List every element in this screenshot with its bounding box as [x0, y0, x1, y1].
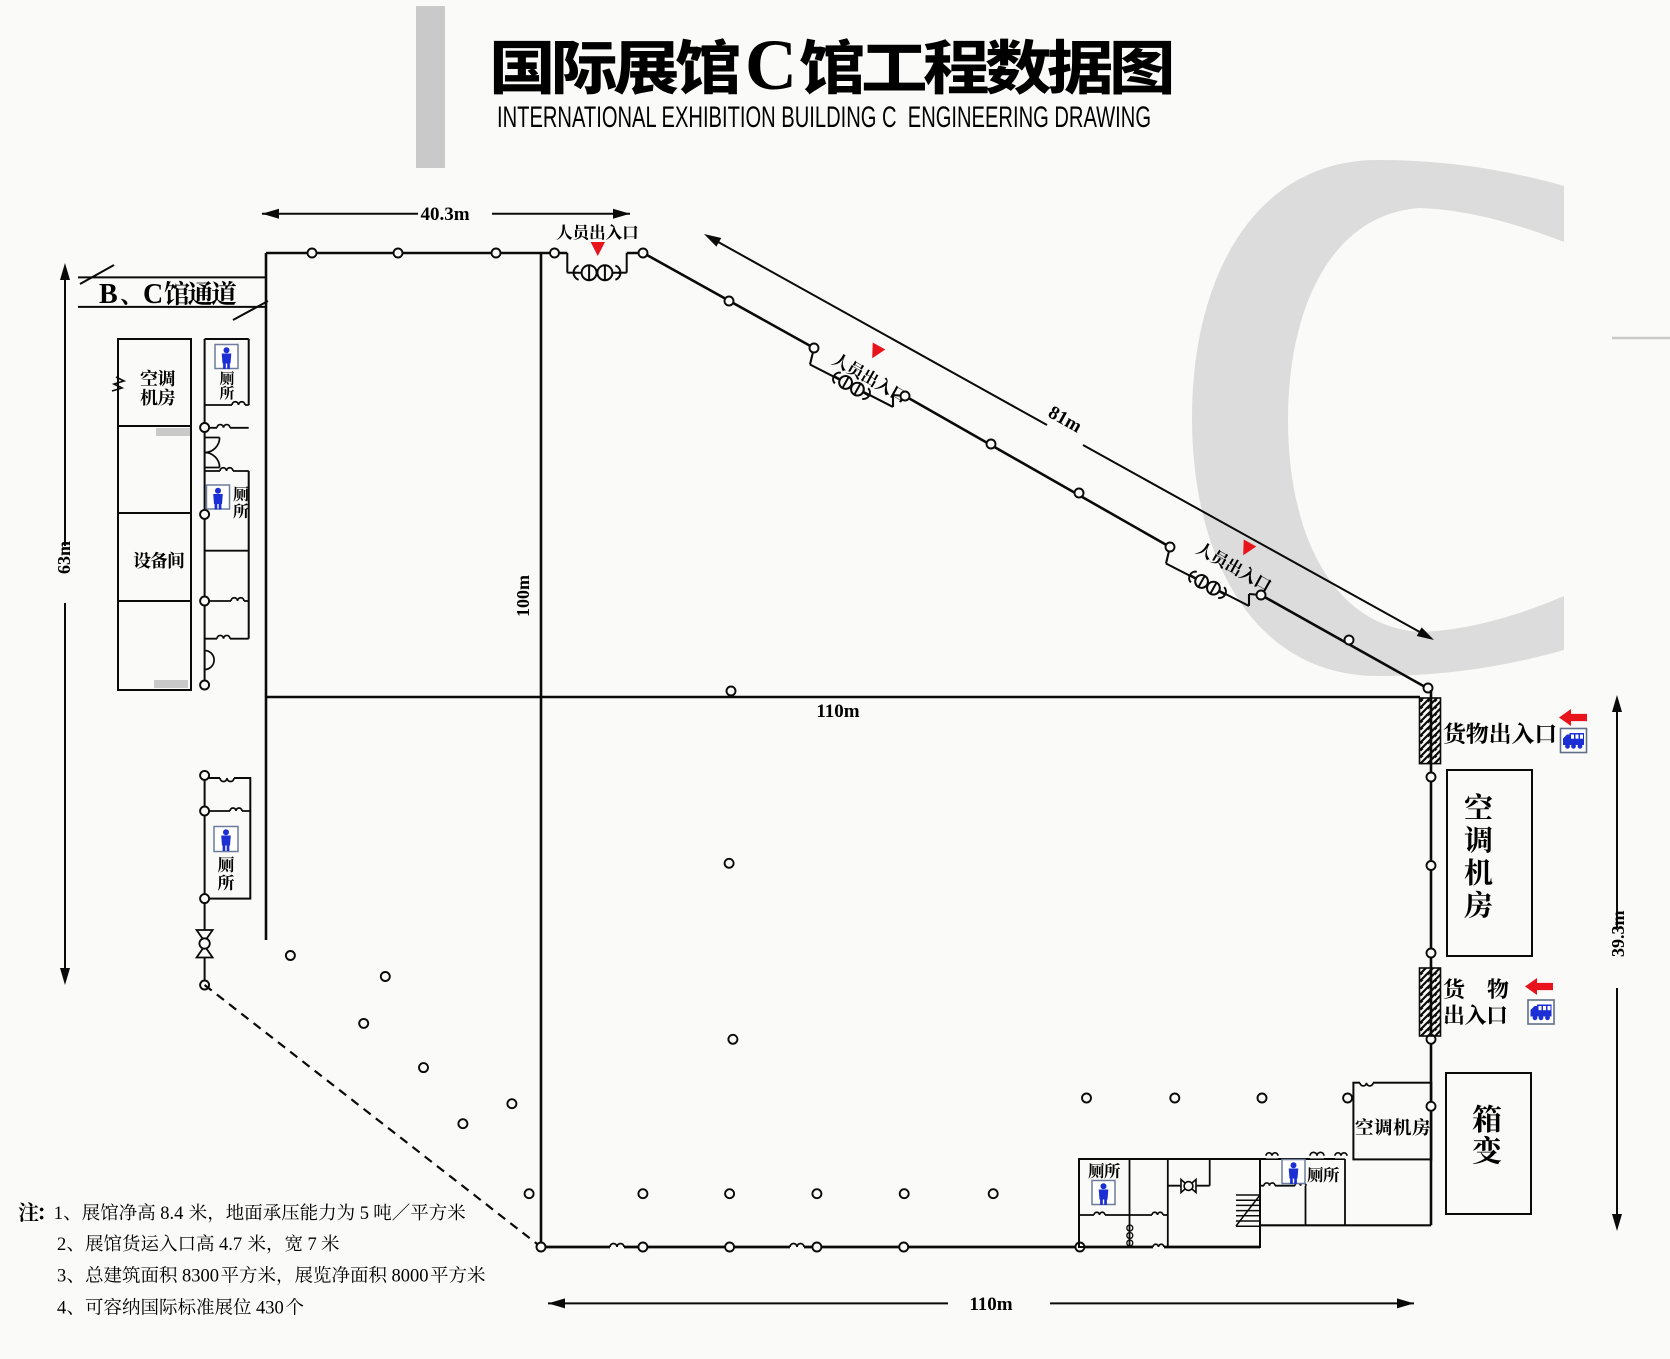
svg-text:C: C: [143, 279, 163, 310]
svg-text:8.4: 8.4: [160, 1204, 183, 1224]
svg-text:63m: 63m: [54, 541, 74, 574]
svg-text:4.7: 4.7: [219, 1235, 242, 1255]
svg-text:430: 430: [256, 1299, 284, 1319]
svg-text:4: 4: [57, 1299, 66, 1319]
svg-text:8300: 8300: [182, 1267, 219, 1287]
svg-text:40.3m: 40.3m: [420, 204, 469, 225]
svg-text:3: 3: [57, 1267, 66, 1287]
svg-text:INTERNATIONAL EXHIBITION BUILD: INTERNATIONAL EXHIBITION BUILDING C ENGI…: [497, 101, 1151, 134]
svg-text:1: 1: [54, 1204, 63, 1224]
svg-text:8000: 8000: [392, 1267, 429, 1287]
svg-text:39.3m: 39.3m: [1608, 911, 1628, 958]
svg-text:2: 2: [57, 1235, 66, 1255]
svg-text:5: 5: [360, 1204, 369, 1224]
svg-text:C: C: [745, 25, 797, 105]
svg-text:110m: 110m: [969, 1294, 1012, 1315]
svg-text:100m: 100m: [513, 575, 533, 617]
svg-text:B: B: [99, 279, 118, 310]
svg-text:110m: 110m: [816, 701, 859, 722]
svg-text:81m: 81m: [1045, 402, 1086, 437]
svg-text:7: 7: [308, 1235, 317, 1255]
